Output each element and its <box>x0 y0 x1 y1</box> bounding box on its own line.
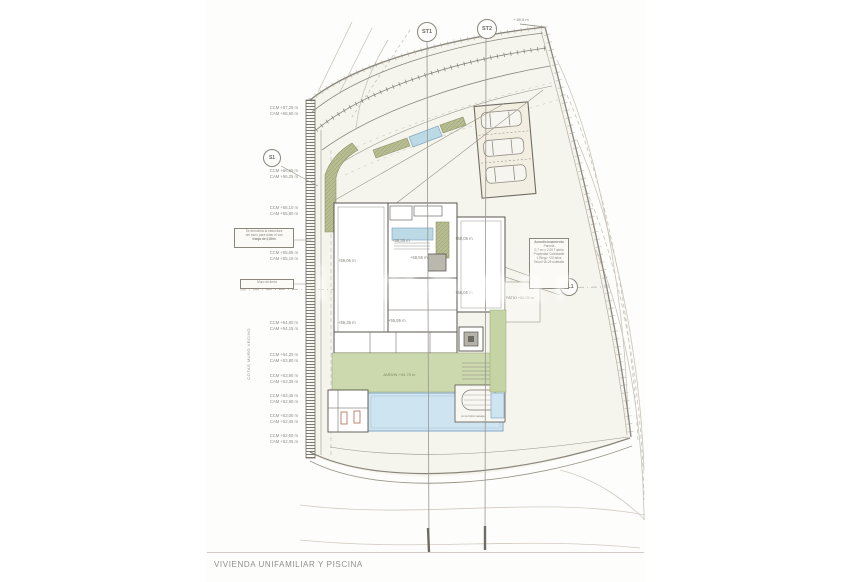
house-elevation: +59,05 m <box>338 258 356 263</box>
elevation-pair: CCM +52,60 mCAM +52,05 m <box>236 433 298 444</box>
spa-label: zona hidromasaje <box>461 414 485 419</box>
elevation-pair: CCM +57,25 mCAM +56,50 m <box>236 105 298 116</box>
earth-wall-box: Muro de tierra <box>240 279 294 289</box>
elevation-pair: CCM +55,65 mCAM +55,15 m <box>236 250 298 261</box>
right-water-step <box>491 393 504 418</box>
stair-core <box>428 254 446 271</box>
marker-st1: ST1 <box>417 22 437 42</box>
corner-elevation-label: + 59,5 m <box>513 17 529 22</box>
caption-divider <box>207 552 644 553</box>
neighbour-wall-label: COTAS MURO VECINO <box>246 328 251 380</box>
elevation-pair: CCM +53,00 mCAM +52,45 m <box>236 413 298 424</box>
marker-st2-label: ST2 <box>482 26 492 32</box>
garden-label: JARDIN +54,75 m <box>383 372 415 377</box>
elevation-pair: CCM +56,65 mCAM +56,25 m <box>236 168 298 179</box>
marker-st1-label: ST1 <box>422 29 432 35</box>
drawing-caption: VIVIENDA UNIFAMILIAR Y PISCINA <box>214 560 363 569</box>
right-garden-strip <box>490 310 506 392</box>
pool-house <box>328 390 368 432</box>
house-elevation: +58,55 m <box>410 255 428 260</box>
car-icon <box>485 164 526 183</box>
plan-drawing <box>0 0 851 582</box>
marker-s1: S1 <box>263 149 281 167</box>
house-elevation: +56,35 m <box>338 320 356 325</box>
site-note-box: Acondicionamiento Parcela 0,7 m² x 2,00 … <box>529 238 569 289</box>
house-elevation: +58,35 m <box>392 238 410 243</box>
car-icon <box>481 109 522 128</box>
house-elevation: +58,05 m <box>455 236 473 241</box>
wall-note-box: Se demolerá la estructura del muro para … <box>234 228 294 248</box>
marker-s1-label: S1 <box>269 155 275 161</box>
parking-area <box>474 102 536 198</box>
elevation-pair: CCM +53,45 mCAM +52,90 m <box>236 393 298 404</box>
fixture <box>341 412 347 424</box>
elevation-pair: CCM +56,10 mCAM +55,60 m <box>236 205 298 216</box>
house-elevation: +55,95 m <box>388 318 406 323</box>
fixture <box>354 411 360 423</box>
site-plan-screenshot: BASEMENT PLAN <box>0 0 851 582</box>
house-elevation: +56,05 m <box>455 290 473 295</box>
marker-st2: ST2 <box>477 19 497 39</box>
patio-label: PATIO +55,05 m <box>506 296 534 301</box>
car-icon <box>483 137 524 156</box>
